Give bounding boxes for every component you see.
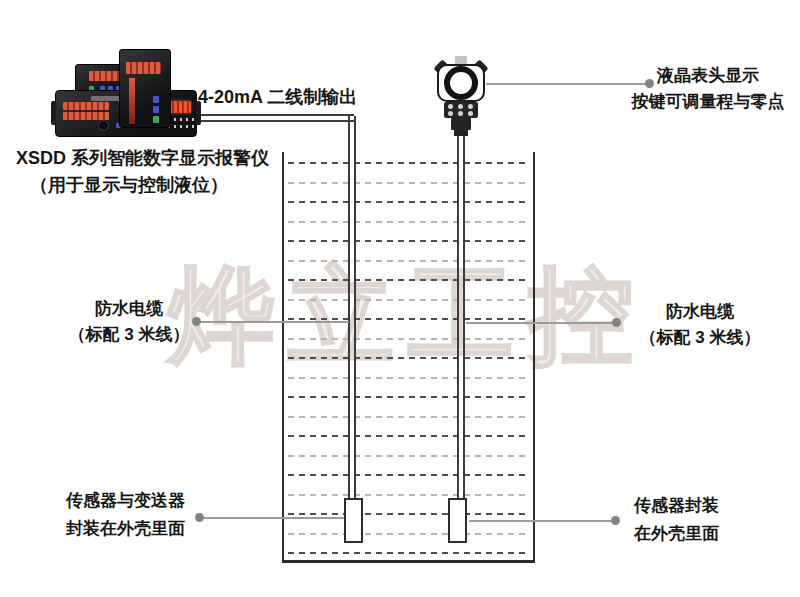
terminal-pin	[448, 104, 453, 109]
liquid-dash-row	[288, 260, 529, 262]
right-probe-housing	[448, 498, 467, 543]
liquid-dash-row	[288, 494, 529, 496]
left-cable-label: 防水电缆 （标配 3 米线）	[66, 296, 192, 348]
liquid-dash-row	[288, 201, 529, 203]
display-alarm-instrument	[55, 47, 200, 139]
right-cable-label-line1: 防水电缆	[630, 299, 770, 325]
terminal-pin	[458, 104, 463, 109]
liquid-dash-row	[288, 533, 529, 535]
level-transmitter-head	[436, 56, 486, 138]
transmitter-body	[437, 64, 485, 102]
callout-line-right-sensor	[469, 520, 615, 522]
liquid-dash-row	[288, 221, 529, 223]
liquid-dash-row	[288, 318, 529, 320]
terminal-pin	[468, 104, 473, 109]
meter-display	[63, 112, 109, 120]
liquid-dash-row	[288, 416, 529, 418]
right-cable-label: 防水电缆 （标配 3 米线）	[630, 299, 770, 351]
left-probe-cable	[348, 116, 356, 498]
meter-button	[153, 116, 159, 123]
liquid-dash-row	[288, 162, 529, 164]
tank	[282, 152, 535, 563]
liquid-dash-row	[288, 357, 529, 359]
mounting-ear	[51, 101, 56, 125]
right-sensor-label-line2: 在外壳里面	[634, 520, 764, 548]
terminal-pin	[448, 111, 453, 116]
diagram-canvas: 烨立工控	[0, 0, 800, 597]
liquid-dash-row	[288, 513, 529, 515]
signal-wire-horizontal	[196, 114, 354, 122]
callout-line-right-cable	[466, 322, 616, 324]
left-sensor-label-line1: 传感器与变送器	[66, 487, 236, 515]
liquid-dash-row	[288, 182, 529, 184]
left-cable-label-line2: （标配 3 米线）	[66, 322, 192, 348]
liquid-dash-row	[288, 474, 529, 476]
liquid-dash-row	[288, 455, 529, 457]
transmitter-label-line2: 按键可调量程与零点	[618, 89, 798, 115]
left-sensor-label-line2: 封装在外壳里面	[66, 515, 236, 543]
callout-dot	[611, 516, 620, 525]
liquid-dash-row	[288, 396, 529, 398]
transmitter-label: 液晶表头显示 按键可调量程与零点	[618, 63, 798, 115]
right-cable-label-line2: （标配 3 米线）	[630, 325, 770, 351]
terminal-pin	[458, 111, 463, 116]
terminal-pin	[468, 111, 473, 116]
meter-back-right	[119, 49, 171, 128]
liquid-dash-row	[288, 279, 529, 281]
liquid-dash-row	[288, 240, 529, 242]
liquid-dash-row	[288, 377, 529, 379]
liquid-dash-row	[288, 435, 529, 437]
instrument-label-line2: （用于显示与控制液位）	[16, 172, 269, 199]
right-sensor-label-line1: 传感器封装	[634, 492, 764, 520]
liquid-dash-row	[288, 552, 529, 554]
left-sensor-label: 传感器与变送器 封装在外壳里面	[66, 487, 236, 543]
keypad-dots	[168, 125, 194, 128]
instrument-label: XSDD 系列智能数字显示报警仪 （用于显示与控制液位）	[16, 145, 269, 199]
left-cable-label-line1: 防水电缆	[66, 296, 192, 322]
meter-button	[153, 106, 159, 113]
callout-dot	[612, 318, 621, 327]
liquid-dash-row	[288, 299, 529, 301]
transmitter-label-line1: 液晶表头显示	[618, 63, 798, 89]
transmitter-cable-gland	[454, 130, 468, 136]
right-probe-cable	[457, 134, 465, 498]
meter-display	[126, 62, 161, 74]
meter-display	[169, 101, 191, 113]
keypad-dots	[168, 118, 194, 121]
wire-output-label: 4-20mA 二线制输出	[198, 85, 357, 109]
right-sensor-label: 传感器封装 在外壳里面	[634, 492, 764, 548]
callout-dot	[192, 317, 201, 326]
meter-button	[153, 96, 159, 103]
callout-line-left-cable	[197, 321, 349, 323]
meter-display	[89, 71, 123, 81]
lcd-display-ring	[444, 66, 478, 100]
meter-bargraph	[129, 78, 135, 124]
meter-display	[63, 102, 109, 110]
transmitter-neck	[451, 118, 471, 130]
left-probe-housing	[344, 498, 363, 543]
brand-logo-dot	[98, 120, 109, 131]
liquid-dash-row	[288, 338, 529, 340]
instrument-label-line1: XSDD 系列智能数字显示报警仪	[16, 145, 269, 172]
transmitter-terminal-block	[444, 102, 478, 118]
